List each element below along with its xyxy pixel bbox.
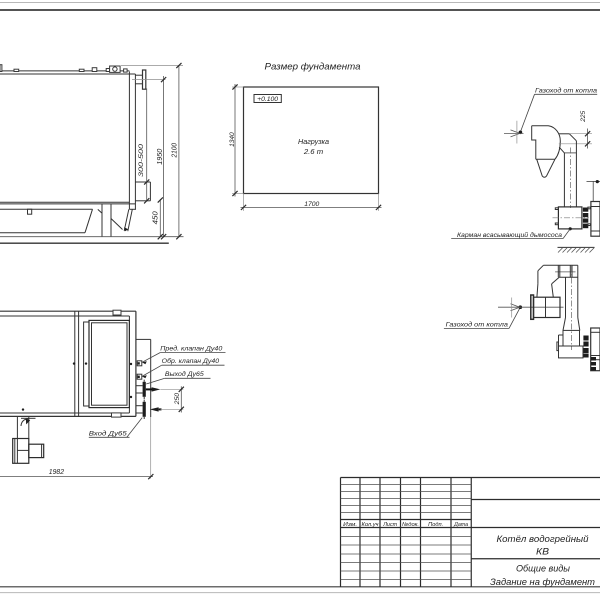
svg-text:300-500: 300-500 (138, 143, 145, 177)
svg-text:1982: 1982 (49, 469, 64, 476)
svg-text:Нагрузка: Нагрузка (298, 137, 329, 146)
svg-text:Пред. клапан Ду40: Пред. клапан Ду40 (160, 344, 222, 352)
svg-text:1340: 1340 (229, 132, 236, 147)
svg-text:№док.: №док. (402, 522, 419, 528)
svg-text:Обр. клапан Ду40: Обр. клапан Ду40 (162, 357, 220, 365)
svg-text:КВ: КВ (536, 547, 549, 557)
svg-text:Лист: Лист (382, 522, 397, 528)
svg-text:2.6 т: 2.6 т (303, 147, 323, 156)
svg-text:Дата: Дата (453, 522, 468, 528)
svg-text:Общие виды: Общие виды (516, 564, 570, 574)
svg-text:Котёл водогрейный: Котёл водогрейный (497, 534, 589, 544)
svg-text:Газоход от котла: Газоход от котла (446, 320, 509, 328)
svg-text:Размер фундамента: Размер фундамента (265, 61, 361, 71)
svg-text:Кол.уч: Кол.уч (362, 522, 379, 528)
svg-text:Выход Ду65: Выход Ду65 (165, 370, 204, 378)
svg-text:250: 250 (174, 392, 181, 405)
svg-text:2100: 2100 (171, 143, 178, 159)
svg-text:Изм.: Изм. (343, 522, 357, 528)
svg-text:225: 225 (580, 110, 587, 122)
svg-text:Вход Ду65: Вход Ду65 (89, 429, 127, 437)
svg-text:Газоход от котла: Газоход от котла (535, 87, 597, 95)
svg-text:1700: 1700 (304, 201, 319, 208)
svg-text:+0.100: +0.100 (257, 96, 279, 103)
svg-text:Задание на фундамент: Задание на фундамент (490, 577, 595, 587)
svg-text:450: 450 (153, 211, 160, 224)
svg-text:Карман всасывающий дымососа: Карман всасывающий дымососа (457, 231, 562, 239)
svg-text:Подп.: Подп. (428, 522, 443, 528)
svg-text:1950: 1950 (157, 149, 164, 165)
